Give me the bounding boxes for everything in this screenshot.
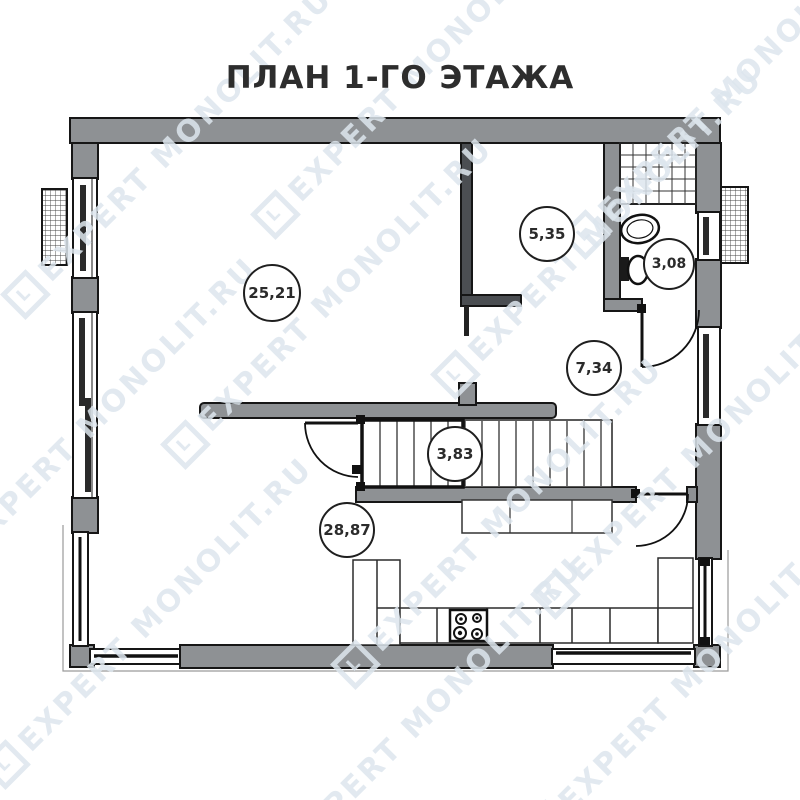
partition-l-return	[461, 295, 521, 306]
page-title: ПЛАН 1-ГО ЭТАЖА	[0, 60, 800, 96]
wall-right-seg1	[696, 143, 721, 213]
room-area-label-bathroom: 3,08	[643, 238, 695, 290]
window-left-bottom-glazing	[73, 532, 88, 646]
wall-bathroom-left	[604, 143, 620, 311]
radiator-right-icon	[721, 187, 748, 263]
window-right-hallway	[698, 327, 720, 425]
wall-bathroom-bottom	[604, 299, 642, 311]
wall-top	[70, 118, 720, 143]
door-stairs	[305, 423, 361, 477]
wall-bottom	[180, 645, 553, 668]
room-area-label-living: 25,21	[243, 264, 301, 322]
window-bottom-right-glazing	[552, 649, 695, 664]
stairs	[356, 415, 612, 533]
stove-icon	[450, 610, 487, 641]
wall-left-seg3	[72, 497, 98, 533]
counter-right-column	[658, 558, 693, 643]
window-left-middle	[73, 312, 97, 498]
kitchen-counters	[353, 558, 693, 645]
partition-stub	[464, 306, 469, 336]
room-area-label-kitchen: 28,87	[319, 502, 375, 558]
wall-left-seg2	[72, 277, 98, 313]
room-area-label-hallway: 7,34	[566, 340, 622, 396]
partition-vertical	[461, 143, 472, 303]
window-bottom-left-glazing	[90, 649, 180, 664]
radiator-left-icon	[42, 189, 67, 265]
door-kitchen	[631, 489, 688, 546]
room-area-label-stairs: 3,83	[427, 426, 483, 482]
floor-plan-drawing	[0, 0, 800, 800]
understair-cabinet	[462, 500, 612, 533]
shower-tile-area	[620, 143, 696, 204]
room-area-label-top-middle: 5,35	[519, 206, 575, 262]
partition-wall	[461, 143, 521, 336]
window-right-bathroom	[698, 212, 720, 260]
wall-left-seg1	[72, 143, 98, 179]
wall-right-seg3	[696, 424, 721, 559]
wall-above-stairs	[200, 403, 556, 418]
door-bathroom	[637, 304, 699, 367]
floor-plan-canvas: ПЛАН 1-ГО ЭТАЖА LEXPERT MONOLIT.RU LEXPE…	[0, 0, 800, 800]
window-right-bottom-glazing	[699, 558, 712, 646]
wall-right-seg2	[696, 259, 721, 328]
window-left-top	[73, 178, 97, 278]
wall-stub-above-stairs	[459, 383, 476, 405]
counter-bottom-row	[400, 608, 658, 643]
wall-corner-post-br	[694, 645, 720, 667]
